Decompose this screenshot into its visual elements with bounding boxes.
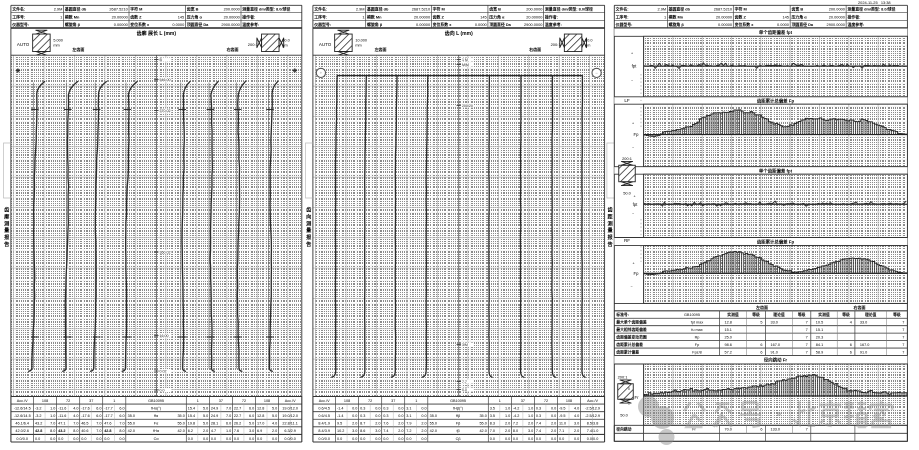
svg-text:72: 72 bbox=[544, 399, 548, 403]
svg-text:量: 量 bbox=[4, 226, 10, 234]
svg-text:操作者:: 操作者: bbox=[242, 14, 255, 19]
svg-text:2.9M: 2.9M bbox=[657, 7, 666, 12]
svg-text:0.0: 0.0 bbox=[211, 437, 216, 441]
svg-text:5.0: 5.0 bbox=[272, 406, 277, 410]
svg-text:7.0: 7.0 bbox=[490, 429, 495, 433]
svg-text:0.0: 0.0 bbox=[462, 388, 467, 392]
svg-text:齿距累计总偏差 Fp: 齿距累计总偏差 Fp bbox=[757, 238, 795, 245]
svg-text:5.0: 5.0 bbox=[249, 422, 254, 426]
svg-text:mm: mm bbox=[355, 44, 361, 48]
svg-text:径向跳动: 径向跳动 bbox=[616, 427, 631, 432]
svg-text:40.6: 40.6 bbox=[81, 429, 88, 433]
svg-text:0.0: 0.0 bbox=[226, 437, 231, 441]
svg-text:模数 Mn: 模数 Mn bbox=[669, 14, 684, 19]
svg-text:文件名:: 文件名: bbox=[11, 7, 25, 12]
svg-text:72: 72 bbox=[66, 399, 70, 403]
svg-text:0.0: 0.0 bbox=[188, 437, 193, 441]
svg-text:顶圆直径 Da: 顶圆直径 Da bbox=[791, 22, 813, 27]
svg-text:72: 72 bbox=[368, 399, 372, 403]
svg-text:20.3: 20.3 bbox=[816, 335, 823, 339]
svg-text:3.0: 3.0 bbox=[574, 422, 579, 426]
svg-text:Fpz/8: Fpz/8 bbox=[692, 350, 702, 354]
svg-text:3.1: 3.1 bbox=[406, 406, 411, 410]
svg-text:基圆直径 db: 基圆直径 db bbox=[366, 7, 389, 12]
svg-text:2.0: 2.0 bbox=[528, 422, 533, 426]
svg-text:15.4: 15.4 bbox=[188, 406, 195, 410]
svg-text:RF: RF bbox=[624, 238, 630, 243]
svg-text:7.4: 7.4 bbox=[383, 429, 388, 433]
svg-text:10.5: 10.5 bbox=[816, 321, 823, 325]
svg-text:0.0000: 0.0000 bbox=[475, 22, 488, 27]
svg-text:0.0/0.0: 0.0/0.0 bbox=[284, 437, 296, 441]
svg-text:0.0: 0.0 bbox=[421, 414, 426, 418]
svg-text:7: 7 bbox=[806, 321, 808, 325]
svg-text:-1.4: -1.4 bbox=[337, 414, 344, 418]
svg-text:测: 测 bbox=[607, 219, 612, 227]
svg-text:7.0: 7.0 bbox=[226, 414, 231, 418]
svg-text:螺旋角 β: 螺旋角 β bbox=[65, 22, 81, 27]
svg-text:顶圆直径 Da: 顶圆直径 Da bbox=[187, 22, 209, 27]
svg-text:测: 测 bbox=[306, 219, 311, 227]
svg-text:11.0: 11.0 bbox=[559, 422, 566, 426]
svg-text:3.0: 3.0 bbox=[528, 429, 533, 433]
svg-text:0.0: 0.0 bbox=[398, 437, 403, 441]
svg-text:0.0: 0.0 bbox=[160, 388, 165, 392]
svg-text:1: 1 bbox=[664, 14, 666, 19]
svg-text:-3.2: -3.2 bbox=[35, 414, 42, 418]
svg-text:齿距偏差变动范围: 齿距偏差变动范围 bbox=[616, 334, 647, 339]
svg-text:43.2: 43.2 bbox=[58, 429, 65, 433]
svg-text:7: 7 bbox=[806, 343, 808, 347]
svg-text:0.0: 0.0 bbox=[421, 437, 426, 441]
svg-text:6: 6 bbox=[760, 343, 762, 347]
svg-text:7.4/1.0: 7.4/1.0 bbox=[587, 429, 599, 433]
svg-text:4.0: 4.0 bbox=[574, 414, 579, 418]
svg-text:35.0: 35.0 bbox=[479, 414, 486, 418]
svg-text:0.0: 0.0 bbox=[513, 437, 518, 441]
svg-text:200.0000: 200.0000 bbox=[829, 7, 846, 12]
svg-text:1.0: 1.0 bbox=[528, 414, 533, 418]
svg-text:7.0: 7.0 bbox=[226, 406, 231, 410]
svg-text:200:1: 200:1 bbox=[618, 375, 628, 380]
svg-text:0.0: 0.0 bbox=[421, 406, 426, 410]
svg-text:−: − bbox=[631, 79, 633, 83]
svg-text:基圆直径 db: 基圆直径 db bbox=[668, 7, 691, 12]
svg-text:22.7: 22.7 bbox=[234, 414, 241, 418]
svg-text:22.7: 22.7 bbox=[234, 406, 241, 410]
svg-text:3.1: 3.1 bbox=[406, 414, 411, 418]
svg-text:47.6: 47.6 bbox=[104, 422, 111, 426]
svg-text:1: 1 bbox=[362, 14, 364, 19]
svg-text:齿数 Z: 齿数 Z bbox=[130, 14, 142, 19]
svg-text:3.0: 3.0 bbox=[375, 429, 380, 433]
svg-text:5.0: 5.0 bbox=[203, 422, 208, 426]
svg-text:50.0: 50.0 bbox=[585, 39, 592, 43]
svg-text:20.00000: 20.00000 bbox=[414, 14, 431, 19]
svg-text:单个齿距偏差 fpt: 单个齿距偏差 fpt bbox=[759, 167, 793, 174]
svg-text:2.0: 2.0 bbox=[272, 429, 277, 433]
svg-text:齿数 Z: 齿数 Z bbox=[735, 14, 747, 19]
svg-text:0.0: 0.0 bbox=[375, 437, 380, 441]
svg-text:20.00000: 20.00000 bbox=[829, 14, 846, 19]
svg-text:左齿面: 左齿面 bbox=[755, 304, 768, 310]
svg-text:6.0: 6.0 bbox=[249, 406, 254, 410]
svg-text:37: 37 bbox=[521, 399, 525, 403]
svg-text:最大单个齿距偏差: 最大单个齿距偏差 bbox=[616, 320, 647, 325]
svg-text:0.0: 0.0 bbox=[536, 437, 541, 441]
svg-text:量: 量 bbox=[607, 226, 613, 234]
svg-text:理论值: 理论值 bbox=[865, 312, 877, 317]
svg-text:-3.2: -3.2 bbox=[35, 406, 42, 410]
svg-text:0.0: 0.0 bbox=[383, 437, 388, 441]
svg-text:测: 测 bbox=[4, 219, 9, 227]
svg-text:1.0: 1.0 bbox=[505, 414, 510, 418]
svg-text:-17.6: -17.6 bbox=[81, 414, 90, 418]
svg-text:42.0: 42.0 bbox=[177, 429, 184, 433]
svg-text:4: 4 bbox=[850, 321, 852, 325]
svg-text:50.0: 50.0 bbox=[620, 413, 628, 418]
svg-text:0.0: 0.0 bbox=[574, 437, 579, 441]
svg-text:2.0: 2.0 bbox=[505, 422, 510, 426]
svg-text:24.9: 24.9 bbox=[211, 406, 218, 410]
svg-text:字符 M: 字符 M bbox=[433, 7, 445, 12]
svg-text:28.1: 28.1 bbox=[211, 422, 218, 426]
svg-text:齿宽 B: 齿宽 B bbox=[187, 7, 199, 12]
svg-text:操作者:: 操作者: bbox=[847, 14, 860, 19]
svg-text:告: 告 bbox=[607, 240, 612, 248]
svg-text:7.0: 7.0 bbox=[96, 422, 101, 426]
svg-text:等级: 等级 bbox=[892, 312, 901, 317]
svg-text:145: 145 bbox=[178, 14, 185, 19]
svg-text:0.0: 0.0 bbox=[551, 414, 556, 418]
svg-text:0.0: 0.0 bbox=[249, 437, 254, 441]
svg-text:0.6/4.5: 0.6/4.5 bbox=[318, 406, 330, 410]
svg-text:实测值: 实测值 bbox=[818, 312, 830, 317]
svg-text:6.0: 6.0 bbox=[226, 422, 231, 426]
svg-text:7: 7 bbox=[806, 350, 808, 354]
svg-text:8.0: 8.0 bbox=[119, 429, 124, 433]
svg-text:0.0: 0.0 bbox=[352, 437, 357, 441]
svg-text:GB10095: GB10095 bbox=[148, 399, 164, 403]
svg-text:25.0: 25.0 bbox=[725, 335, 732, 339]
svg-text:0.0: 0.0 bbox=[352, 406, 357, 410]
svg-text:0.0: 0.0 bbox=[104, 437, 109, 441]
svg-text:3.0: 3.0 bbox=[352, 429, 357, 433]
svg-text:6.0: 6.0 bbox=[249, 414, 254, 418]
svg-text:0.0: 0.0 bbox=[337, 437, 342, 441]
svg-text:1.0: 1.0 bbox=[50, 414, 55, 418]
svg-text:0.0: 0.0 bbox=[50, 437, 55, 441]
svg-text:等级: 等级 bbox=[797, 312, 806, 317]
svg-text:齿距累计偏差: 齿距累计偏差 bbox=[616, 349, 639, 354]
svg-text:6: 6 bbox=[850, 343, 852, 347]
svg-text:0.0: 0.0 bbox=[96, 437, 101, 441]
svg-text:fHα: fHα bbox=[153, 429, 160, 433]
svg-text:模数 Mn: 模数 Mn bbox=[65, 14, 80, 19]
svg-text:7.0: 7.0 bbox=[119, 422, 124, 426]
svg-text:−: − bbox=[628, 403, 630, 407]
svg-text:齿廓 展长 L (mm): 齿廓 展长 L (mm) bbox=[137, 30, 177, 37]
svg-text:温度参考:: 温度参考: bbox=[545, 22, 562, 27]
svg-text:2.0: 2.0 bbox=[505, 429, 510, 433]
svg-text:变位系数 x: 变位系数 x bbox=[130, 22, 150, 27]
svg-text:7: 7 bbox=[806, 335, 808, 339]
svg-text:温度参考:: 温度参考: bbox=[242, 22, 259, 27]
svg-text:108: 108 bbox=[566, 399, 572, 403]
svg-text:42.8: 42.8 bbox=[104, 429, 111, 433]
svg-text:0.3: 0.3 bbox=[383, 414, 388, 418]
svg-text:0.0: 0.0 bbox=[375, 414, 380, 418]
svg-text:42.0: 42.0 bbox=[430, 429, 437, 433]
svg-text:-12.6/14.5: -12.6/14.5 bbox=[14, 414, 31, 418]
svg-text:0.0000: 0.0000 bbox=[172, 22, 185, 27]
svg-text:标准号:: 标准号: bbox=[615, 312, 629, 317]
svg-text:8.6: 8.6 bbox=[360, 429, 365, 433]
svg-text:2687.5210: 2687.5210 bbox=[714, 7, 733, 12]
svg-text:0.3: 0.3 bbox=[360, 414, 365, 418]
svg-text:0.0: 0.0 bbox=[257, 437, 262, 441]
svg-text:5.0: 5.0 bbox=[272, 414, 277, 418]
svg-text:37: 37 bbox=[89, 399, 93, 403]
svg-text:58.9: 58.9 bbox=[816, 350, 823, 354]
svg-text:2900.0000: 2900.0000 bbox=[221, 22, 240, 27]
svg-text:17.0: 17.0 bbox=[257, 422, 264, 426]
svg-text:5.0: 5.0 bbox=[203, 406, 208, 410]
svg-text:工序号:: 工序号: bbox=[12, 14, 25, 19]
svg-text:33.0: 33.0 bbox=[771, 321, 778, 325]
svg-text:7.0: 7.0 bbox=[50, 422, 55, 426]
svg-text:−: − bbox=[595, 71, 598, 76]
svg-text:报: 报 bbox=[306, 233, 312, 241]
svg-text:200.0000: 200.0000 bbox=[224, 7, 241, 12]
svg-text:模数 Mn: 模数 Mn bbox=[367, 14, 382, 19]
svg-text:LF: LF bbox=[624, 98, 630, 103]
svg-text:91.0: 91.0 bbox=[860, 350, 867, 354]
svg-text:1: 1 bbox=[197, 399, 199, 403]
svg-text:42.0/2.6: 42.0/2.6 bbox=[15, 429, 29, 433]
svg-text:6.0: 6.0 bbox=[119, 406, 124, 410]
svg-text:-4.2: -4.2 bbox=[513, 414, 520, 418]
svg-text:200/20: 200/20 bbox=[462, 104, 473, 108]
svg-text:2.0: 2.0 bbox=[421, 422, 426, 426]
svg-text:0.00000: 0.00000 bbox=[114, 22, 129, 27]
svg-text:-9.5: -9.5 bbox=[559, 406, 566, 410]
svg-text:8.0: 8.0 bbox=[50, 429, 55, 433]
svg-text:108: 108 bbox=[264, 399, 270, 403]
svg-text:-11.6: -11.6 bbox=[58, 406, 66, 410]
svg-text:1: 1 bbox=[60, 14, 62, 19]
svg-text:7.0: 7.0 bbox=[96, 429, 101, 433]
svg-text:26.2: 26.2 bbox=[234, 422, 241, 426]
svg-text:4.0: 4.0 bbox=[73, 414, 78, 418]
svg-text:右齿面: 右齿面 bbox=[226, 46, 239, 52]
svg-text:量: 量 bbox=[306, 226, 312, 234]
svg-text:2.0: 2.0 bbox=[398, 429, 403, 433]
svg-text:98.6: 98.6 bbox=[725, 343, 732, 347]
svg-text:-17.7: -17.7 bbox=[104, 414, 113, 418]
svg-text:廓: 廓 bbox=[4, 212, 10, 220]
svg-text:Acc./V: Acc./V bbox=[319, 399, 330, 403]
svg-text:操作者:: 操作者: bbox=[545, 14, 558, 19]
svg-text:7.4: 7.4 bbox=[536, 429, 541, 433]
svg-text:2.0: 2.0 bbox=[375, 422, 380, 426]
svg-text:0.0: 0.0 bbox=[406, 437, 411, 441]
svg-text:齿距累计总偏差 Fp: 齿距累计总偏差 Fp bbox=[757, 97, 795, 104]
svg-text:变位系数 x: 变位系数 x bbox=[433, 22, 453, 27]
svg-text:齿: 齿 bbox=[4, 206, 10, 214]
svg-text:46.1/6.4: 46.1/6.4 bbox=[15, 422, 29, 426]
svg-text:6.0: 6.0 bbox=[96, 414, 101, 418]
svg-text:μm: μm bbox=[282, 44, 287, 48]
svg-text:3.5: 3.5 bbox=[490, 406, 495, 410]
svg-text:370.02: 370.02 bbox=[160, 109, 171, 113]
svg-text:0.0: 0.0 bbox=[35, 437, 40, 441]
svg-text:+: + bbox=[632, 262, 634, 266]
svg-text:Fp: Fp bbox=[634, 132, 640, 137]
svg-text:0.0: 0.0 bbox=[272, 437, 277, 441]
svg-text:fHβ(°): fHβ(°) bbox=[453, 406, 464, 410]
svg-text:0.0: 0.0 bbox=[119, 437, 124, 441]
svg-text:等级: 等级 bbox=[841, 312, 850, 317]
svg-text:55.0: 55.0 bbox=[128, 422, 135, 426]
svg-text:径向跳动 Fr: 径向跳动 Fr bbox=[764, 357, 787, 364]
svg-text:压力角 α: 压力角 α bbox=[791, 14, 807, 19]
svg-text:1.0: 1.0 bbox=[50, 406, 55, 410]
svg-text:0.3: 0.3 bbox=[536, 406, 541, 410]
svg-text:24.9: 24.9 bbox=[211, 414, 218, 418]
svg-text:GB10095: GB10095 bbox=[450, 399, 466, 403]
svg-text:15.4: 15.4 bbox=[188, 414, 195, 418]
svg-text:0.0: 0.0 bbox=[375, 406, 380, 410]
svg-text:72: 72 bbox=[242, 399, 246, 403]
svg-text:42.0: 42.0 bbox=[128, 429, 135, 433]
svg-text:文件名:: 文件名: bbox=[313, 7, 327, 12]
svg-text:等级: 等级 bbox=[751, 312, 760, 317]
svg-text:−: − bbox=[632, 212, 634, 216]
svg-text:0.0: 0.0 bbox=[528, 437, 533, 441]
svg-text:8.3: 8.3 bbox=[490, 422, 495, 426]
svg-text:84.1: 84.1 bbox=[816, 343, 823, 347]
svg-text:7: 7 bbox=[902, 335, 904, 339]
svg-text:测量直径 dm/类型: 8.0/球径: 测量直径 dm/类型: 8.0/球径 bbox=[242, 7, 290, 12]
svg-text:7.6: 7.6 bbox=[383, 422, 388, 426]
svg-text:μm: μm bbox=[585, 44, 590, 48]
svg-text:+: + bbox=[320, 71, 323, 76]
svg-text:145: 145 bbox=[480, 14, 487, 19]
svg-text:6.0: 6.0 bbox=[96, 406, 101, 410]
svg-text:齿宽 B: 齿宽 B bbox=[791, 7, 803, 12]
svg-text:向: 向 bbox=[306, 212, 311, 220]
svg-text:Acc./V: Acc./V bbox=[17, 399, 28, 403]
svg-text:20.00000: 20.00000 bbox=[716, 14, 733, 19]
svg-text:+: + bbox=[632, 122, 634, 126]
svg-text:告: 告 bbox=[306, 240, 311, 248]
svg-text:8.4/3.9: 8.4/3.9 bbox=[318, 429, 330, 433]
svg-text:2.0: 2.0 bbox=[551, 429, 556, 433]
svg-text:7.0: 7.0 bbox=[73, 422, 78, 426]
svg-text:0.6/4.5: 0.6/4.5 bbox=[318, 414, 330, 418]
svg-text:+: + bbox=[633, 195, 635, 199]
svg-text:0.0: 0.0 bbox=[551, 406, 556, 410]
svg-text:2024-11-25 13:38: 2024-11-25 13:38 bbox=[858, 0, 891, 5]
svg-text:齿向 L (mm): 齿向 L (mm) bbox=[445, 30, 473, 37]
svg-text:4.0: 4.0 bbox=[73, 406, 78, 410]
svg-text:Fp: Fp bbox=[695, 343, 699, 347]
svg-text:0.0: 0.0 bbox=[81, 437, 86, 441]
svg-text:50.0: 50.0 bbox=[623, 191, 631, 196]
svg-text:108: 108 bbox=[42, 399, 48, 403]
svg-text:42.0: 42.0 bbox=[479, 429, 486, 433]
svg-text:0.0: 0.0 bbox=[73, 437, 78, 441]
svg-text:0.0/0.0: 0.0/0.0 bbox=[16, 437, 28, 441]
svg-text:35.0: 35.0 bbox=[177, 414, 184, 418]
svg-text:7: 7 bbox=[806, 428, 808, 432]
svg-text:546.00: 546.00 bbox=[160, 78, 171, 82]
svg-text:报: 报 bbox=[4, 233, 10, 241]
svg-text:16.00: 16.00 bbox=[160, 334, 169, 338]
svg-text:齿距累计总偏差: 齿距累计总偏差 bbox=[616, 342, 643, 347]
svg-text:8.7: 8.7 bbox=[360, 422, 365, 426]
svg-text:2.9M: 2.9M bbox=[54, 7, 63, 12]
svg-text:−: − bbox=[632, 146, 634, 150]
svg-text:8.0: 8.0 bbox=[513, 429, 518, 433]
svg-text:2.0: 2.0 bbox=[352, 422, 357, 426]
svg-text:2687.5210: 2687.5210 bbox=[109, 7, 128, 12]
svg-text:1.0: 1.0 bbox=[226, 429, 231, 433]
svg-text:7: 7 bbox=[902, 321, 904, 325]
svg-text:7.4: 7.4 bbox=[536, 422, 541, 426]
svg-text:4.0: 4.0 bbox=[272, 422, 277, 426]
svg-text:57.2: 57.2 bbox=[725, 350, 732, 354]
svg-text:20.00000: 20.00000 bbox=[526, 14, 543, 19]
svg-text:字符 M: 字符 M bbox=[735, 7, 747, 12]
svg-text:距: 距 bbox=[607, 212, 613, 220]
svg-text:GB10095: GB10095 bbox=[684, 313, 700, 317]
svg-text:单个齿距偏差 fpt: 单个齿距偏差 fpt bbox=[759, 29, 793, 36]
svg-text:M/M: M/M bbox=[462, 63, 469, 67]
svg-text:12.8: 12.8 bbox=[257, 414, 264, 418]
svg-text:告: 告 bbox=[4, 240, 9, 248]
svg-text:0.0: 0.0 bbox=[352, 414, 357, 418]
svg-text:Rp: Rp bbox=[695, 335, 700, 339]
svg-text:5.0: 5.0 bbox=[203, 414, 208, 418]
svg-text:0.0: 0.0 bbox=[234, 437, 239, 441]
svg-text:55.0: 55.0 bbox=[479, 422, 486, 426]
svg-text:Acc./V: Acc./V bbox=[285, 399, 296, 403]
svg-text:0.00000: 0.00000 bbox=[416, 22, 431, 27]
svg-text:压力角 α: 压力角 α bbox=[187, 14, 203, 19]
svg-text:-2.5/12.9: -2.5/12.9 bbox=[585, 414, 600, 418]
svg-text:0.00000: 0.00000 bbox=[718, 22, 733, 27]
svg-text:42.8: 42.8 bbox=[35, 429, 42, 433]
svg-text:0.0: 0.0 bbox=[360, 437, 365, 441]
svg-text:7.7: 7.7 bbox=[462, 380, 467, 384]
svg-text:仪器型号:: 仪器型号: bbox=[11, 22, 29, 27]
svg-text:3.5: 3.5 bbox=[490, 414, 495, 418]
svg-text:1.0: 1.0 bbox=[528, 406, 533, 410]
svg-text:fu max: fu max bbox=[691, 328, 702, 332]
svg-text:47.1: 47.1 bbox=[58, 422, 65, 426]
svg-text:7: 7 bbox=[902, 350, 904, 354]
svg-text:0.3: 0.3 bbox=[383, 406, 388, 410]
svg-text:8.4/1.9: 8.4/1.9 bbox=[318, 422, 330, 426]
svg-text:2.9M: 2.9M bbox=[356, 7, 365, 12]
svg-text:1: 1 bbox=[499, 399, 501, 403]
svg-text:0: 0 bbox=[628, 387, 630, 391]
svg-text:8.5/3.8: 8.5/3.8 bbox=[587, 422, 599, 426]
svg-text:1 M: 1 M bbox=[462, 58, 468, 62]
svg-text:压力角 α: 压力角 α bbox=[489, 14, 505, 19]
